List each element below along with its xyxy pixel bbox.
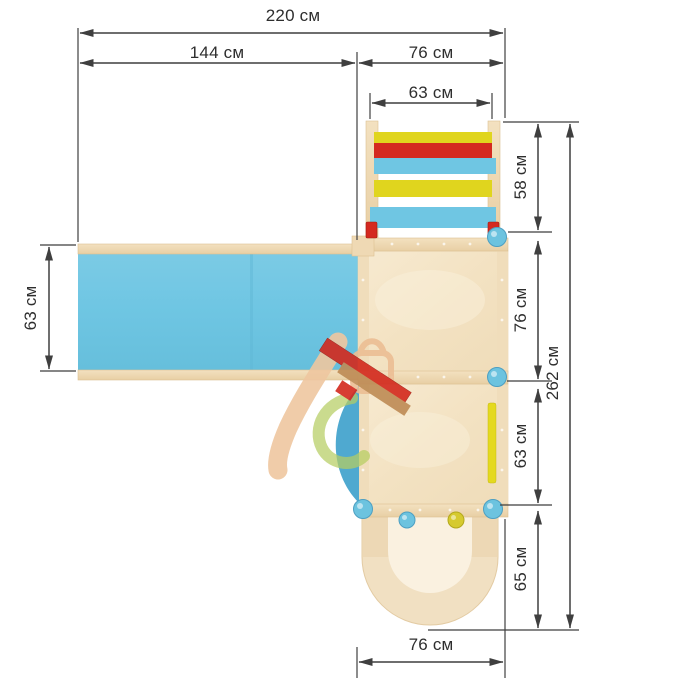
dimension-label-right-lower-platform: 63 см	[511, 424, 531, 469]
tower-beam-top	[358, 238, 508, 251]
ladder-rung-red	[374, 143, 492, 158]
slide-rail-top	[78, 244, 364, 254]
yellow-climb-strip	[488, 403, 496, 483]
dimension-label-right-upper-platform: 76 см	[511, 288, 531, 333]
plywood-streak	[375, 270, 485, 330]
drawing-canvas: 220 см 144 см 76 см 63 см 63 см 58 см 76…	[0, 0, 678, 700]
dimension-label-left-slide-width: 63 см	[21, 286, 41, 331]
ball-blue	[484, 500, 503, 519]
dimension-label-right-total-depth: 262 см	[543, 346, 563, 400]
plywood-streak	[370, 412, 470, 468]
ladder-rung-yellow-2	[374, 180, 492, 197]
dimension-label-right-ladder-depth: 58 см	[511, 155, 531, 200]
dimension-label-right-front-section: 65 см	[511, 547, 531, 592]
ball-blue	[354, 500, 373, 519]
ladder-top-view	[366, 121, 500, 238]
dimension-label-top-slide: 144 см	[190, 43, 244, 63]
playground-top-view-drawing	[0, 0, 678, 700]
dimension-label-bottom-tower-width: 76 см	[409, 635, 454, 655]
corner-post-block	[352, 236, 374, 256]
ladder-rung-blue-1	[374, 158, 496, 174]
ball-blue-small	[399, 512, 415, 528]
dimension-label-top-tower: 76 см	[409, 43, 454, 63]
front-rounded-section	[358, 504, 508, 625]
ball-blue	[488, 368, 507, 387]
ball-yellow-small	[448, 512, 464, 528]
dimension-label-top-ladder: 63 см	[409, 83, 454, 103]
slide-seam	[250, 250, 253, 376]
structure	[78, 121, 508, 625]
ladder-rung-blue-2	[370, 207, 496, 228]
post-cap-red-left	[366, 222, 377, 238]
dimension-label-top-total: 220 см	[266, 6, 320, 26]
ladder-rung-yellow-1	[374, 132, 492, 143]
ball-blue	[488, 228, 507, 247]
